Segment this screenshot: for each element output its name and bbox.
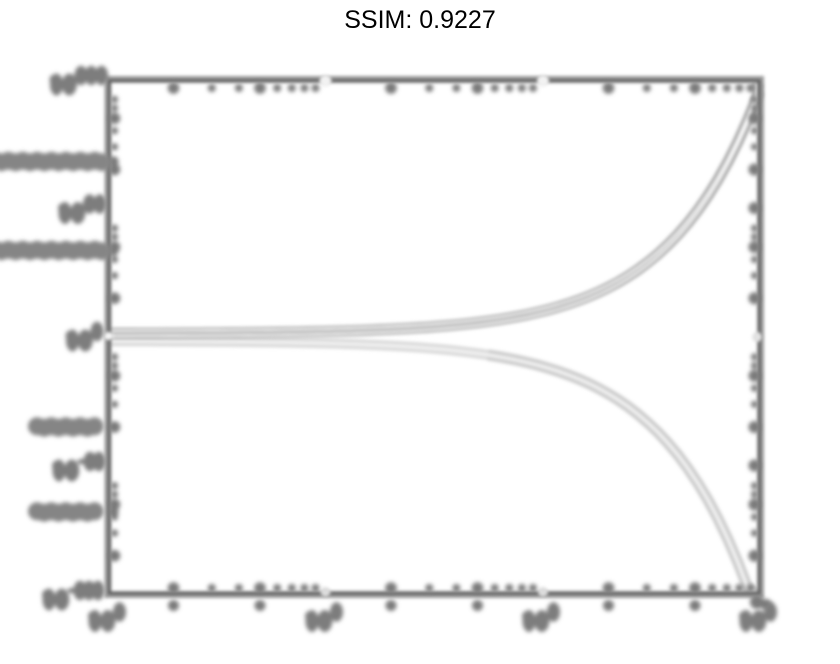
svg-text:SSIM: 0.9227: SSIM: 0.9227 <box>344 6 495 34</box>
